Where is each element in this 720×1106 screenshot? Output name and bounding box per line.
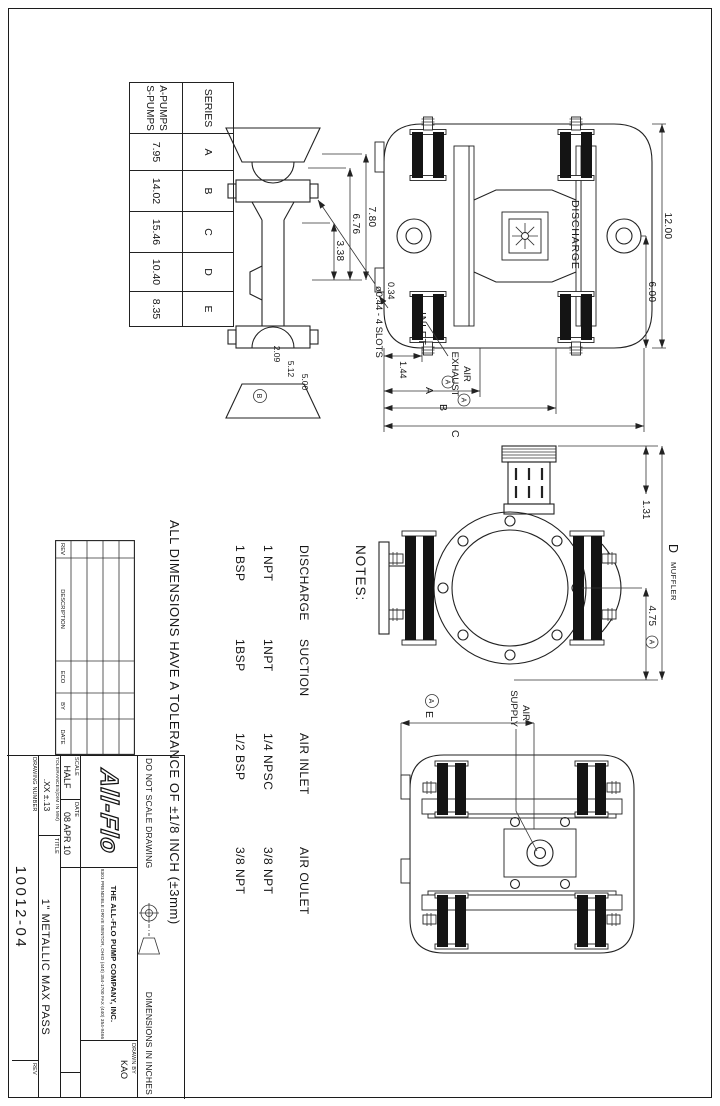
notes-header: DISCHARGE bbox=[297, 545, 311, 629]
empty-cell bbox=[61, 867, 80, 1072]
date-cell: DATE 08 APR 10 bbox=[61, 799, 80, 867]
notes-value: 3/8 NPT bbox=[233, 847, 247, 937]
dimensions-in-inches-label: DIMENSIONS IN INCHES bbox=[144, 992, 154, 1095]
svg-text:4.75: 4.75 bbox=[646, 605, 657, 626]
svg-text:B: B bbox=[255, 394, 262, 399]
dim-a-label: A bbox=[423, 387, 435, 394]
third-angle-projection-icon bbox=[137, 902, 161, 958]
notes-col-suction: SUCTION 1NPT 1BSP bbox=[233, 639, 311, 723]
air-exhaust-label: AIR EXHAUST bbox=[426, 322, 472, 397]
notes-table: DISCHARGE 1 NPT 1 BSP SUCTION 1NPT 1BSP … bbox=[233, 545, 311, 945]
value-d: 10.40 bbox=[130, 253, 183, 292]
muffler-assembly bbox=[502, 446, 556, 514]
scale-cell: SCALE HALF bbox=[61, 755, 80, 799]
air-supply-line2: SUPPLY bbox=[508, 690, 519, 727]
air-supply-line1: AIR bbox=[520, 705, 531, 721]
drawing-scan-viewport: SERIES A B C D E A-PUMPS S-PUMPS 7.95 14… bbox=[0, 0, 720, 1106]
notes-value: 1/4 NPSC bbox=[261, 733, 275, 837]
svg-text:1.44: 1.44 bbox=[398, 361, 408, 379]
dim-2-09-label: 2.09 bbox=[272, 346, 282, 363]
dim-b-label: B bbox=[437, 404, 449, 411]
by-col-header: BY bbox=[59, 702, 65, 710]
notes-value: 1 NPT bbox=[261, 545, 275, 629]
dimension-6-00: 6.00 bbox=[641, 236, 657, 348]
notes-value: 1 BSP bbox=[233, 545, 247, 629]
rev-cell: REV bbox=[12, 1060, 38, 1098]
date-col-header: DATE bbox=[59, 729, 65, 744]
drawing-title-cell: TITLE 1" METALLIC MAX PASS bbox=[39, 835, 60, 1098]
value-a: 7.95 bbox=[130, 134, 183, 171]
air-exhaust-line1: AIR bbox=[461, 366, 472, 382]
notes-col-air-inlet: AIR INLET 1/4 NPSC 1/2 BSP bbox=[233, 733, 311, 837]
drawn-by-cell: DRAWN BY KAO bbox=[81, 1040, 137, 1098]
air-valve-starburst-icon bbox=[512, 223, 538, 249]
series-names-cell: A-PUMPS S-PUMPS bbox=[130, 83, 183, 134]
svg-text:7.80: 7.80 bbox=[366, 206, 377, 227]
dimension-chain-abc: A A A B C bbox=[384, 348, 644, 438]
svg-text:12.00: 12.00 bbox=[662, 212, 673, 239]
mounting-foot bbox=[401, 859, 410, 883]
rear-view-drawing: AIR SUPPLY A E bbox=[376, 683, 694, 983]
revision-table: REV DESCRIPTION ECO BY DATE bbox=[55, 540, 135, 755]
svg-text:1.31: 1.31 bbox=[640, 500, 651, 520]
dimension-12-00: 12.00 bbox=[652, 124, 673, 348]
dim-e-label: E bbox=[423, 711, 435, 718]
description-col-header: DESCRIPTION bbox=[59, 589, 65, 629]
pump-flange-circle bbox=[434, 512, 586, 664]
muffler-side-view-drawing: D MUFFLER 1.31 4.75 A bbox=[374, 438, 696, 693]
scale-label: SCALE bbox=[73, 757, 79, 776]
company-address: 8301 PRENDIBLE DRIVE MENTOR, OHIO (440) … bbox=[100, 869, 105, 1039]
drawing-title: 1" METALLIC MAX PASS bbox=[39, 836, 60, 1098]
ref-a-circle-label: A bbox=[427, 699, 434, 704]
muffler-label: MUFFLER bbox=[669, 562, 678, 601]
notes-value: 1NPT bbox=[261, 639, 275, 723]
dimension-1-44: 1.44 bbox=[384, 348, 422, 379]
notes-col-discharge: DISCHARGE 1 NPT 1 BSP bbox=[233, 545, 311, 629]
dim-d-label: D bbox=[666, 544, 680, 553]
notes-col-air-outlet: AIR OULET 3/8 NPT 3/8 NPT bbox=[233, 847, 311, 937]
notes-block: NOTES: DISCHARGE 1 NPT 1 BSP SUCTION 1NP… bbox=[233, 545, 368, 945]
air-valve-block bbox=[504, 818, 576, 889]
drawn-by-label: DRAWN BY bbox=[130, 1043, 136, 1074]
ref-a-circle-label: A bbox=[444, 380, 451, 385]
notes-value: 1BSP bbox=[233, 639, 247, 723]
dimension-1-31: 1.31 bbox=[640, 446, 651, 520]
front-view-drawing: DISCHARGE INLET AIR EXHAUST 12.00 6.00 A… bbox=[374, 116, 676, 446]
tolerances-label: TOLERANCES(DIM IN MM) bbox=[54, 757, 59, 821]
notes-value: 3/8 NPT bbox=[261, 847, 275, 937]
title-block-row-title: TOLERANCES(DIM IN MM) .XX ±.13 TITLE 1" … bbox=[39, 755, 61, 1098]
s-pumps-label: S-PUMPS bbox=[143, 83, 156, 133]
svg-text:3.38: 3.38 bbox=[334, 240, 345, 261]
value-e: 8.35 bbox=[130, 292, 183, 327]
do-not-scale-row: DO NOT SCALE DRAWING DIMENSIONS IN INCHE… bbox=[137, 758, 161, 1095]
notes-header: AIR OULET bbox=[297, 847, 311, 937]
ref-a-circle-label: A bbox=[648, 640, 655, 645]
tolerances-cell: TOLERANCES(DIM IN MM) .XX ±.13 bbox=[39, 755, 60, 835]
title-block-row-company: All-Flo THE ALL-FLO PUMP COMPANY, INC. 8… bbox=[81, 755, 137, 1098]
svg-text:6.76: 6.76 bbox=[350, 213, 361, 234]
drawing-number-label: DRAWING NUMBER bbox=[31, 757, 37, 812]
slot-note-label: ø0.44 - 4 SLOTS bbox=[373, 286, 384, 358]
notes-value: 1/2 BSP bbox=[233, 733, 247, 837]
all-flo-logo: All-Flo bbox=[95, 767, 124, 855]
dim-c-label: C bbox=[449, 430, 461, 438]
inlet-label: INLET bbox=[416, 312, 428, 346]
empty-cell bbox=[61, 1072, 80, 1098]
ref-b-circle: B bbox=[254, 390, 267, 403]
air-exhaust-line2: EXHAUST bbox=[449, 352, 460, 397]
rev-label: REV bbox=[31, 1063, 37, 1075]
value-c: 15.46 bbox=[130, 212, 183, 253]
a-pumps-label: A-PUMPS bbox=[156, 83, 169, 133]
drawing-number-cell: DRAWING NUMBER 10012-04 bbox=[12, 755, 38, 1060]
date-label: DATE bbox=[73, 802, 79, 817]
profile-view-drawing: 3.38 6.76 7.80 ø0.44 - 4 SLOTS 2.09 5.12… bbox=[218, 118, 388, 428]
title-block-row-scale-date: SCALE HALF DATE 08 APR 10 bbox=[61, 755, 81, 1098]
company-info-cell: THE ALL-FLO PUMP COMPANY, INC. 8301 PREN… bbox=[81, 867, 137, 1040]
title-label: TITLE bbox=[53, 838, 59, 854]
notes-header: SUCTION bbox=[297, 639, 311, 723]
value-b: 14.02 bbox=[130, 171, 183, 212]
rev-col-header: REV bbox=[59, 543, 65, 555]
dimension-3-38: 3.38 bbox=[302, 223, 345, 280]
do-not-scale-label: DO NOT SCALE DRAWING bbox=[144, 758, 154, 868]
mounting-foot bbox=[401, 775, 410, 799]
notes-title: NOTES: bbox=[353, 545, 368, 945]
engineering-drawing-sheet: SERIES A B C D E A-PUMPS S-PUMPS 7.95 14… bbox=[0, 0, 720, 1106]
company-logo: All-Flo bbox=[81, 755, 137, 867]
dim-5-00-label: 5.00 bbox=[300, 374, 310, 391]
air-supply-label: AIR SUPPLY bbox=[508, 690, 537, 851]
eco-col-header: ECO bbox=[59, 671, 65, 684]
clamp-band-bottom-left bbox=[410, 117, 446, 181]
title-block: All-Flo THE ALL-FLO PUMP COMPANY, INC. 8… bbox=[12, 755, 138, 1098]
svg-text:6.00: 6.00 bbox=[646, 281, 657, 302]
discharge-label: DISCHARGE bbox=[569, 200, 581, 270]
dim-5-12-label: 5.12 bbox=[286, 361, 296, 378]
company-name: THE ALL-FLO PUMP COMPANY, INC. bbox=[109, 886, 118, 1023]
title-block-row-number: DRAWING NUMBER 10012-04 REV bbox=[12, 755, 39, 1098]
notes-header: AIR INLET bbox=[297, 733, 311, 837]
ref-a-circle-label: A bbox=[460, 398, 467, 403]
series-value-row: A-PUMPS S-PUMPS 7.95 14.02 15.46 10.40 8… bbox=[130, 83, 183, 327]
bottom-clamp-band bbox=[379, 531, 436, 645]
